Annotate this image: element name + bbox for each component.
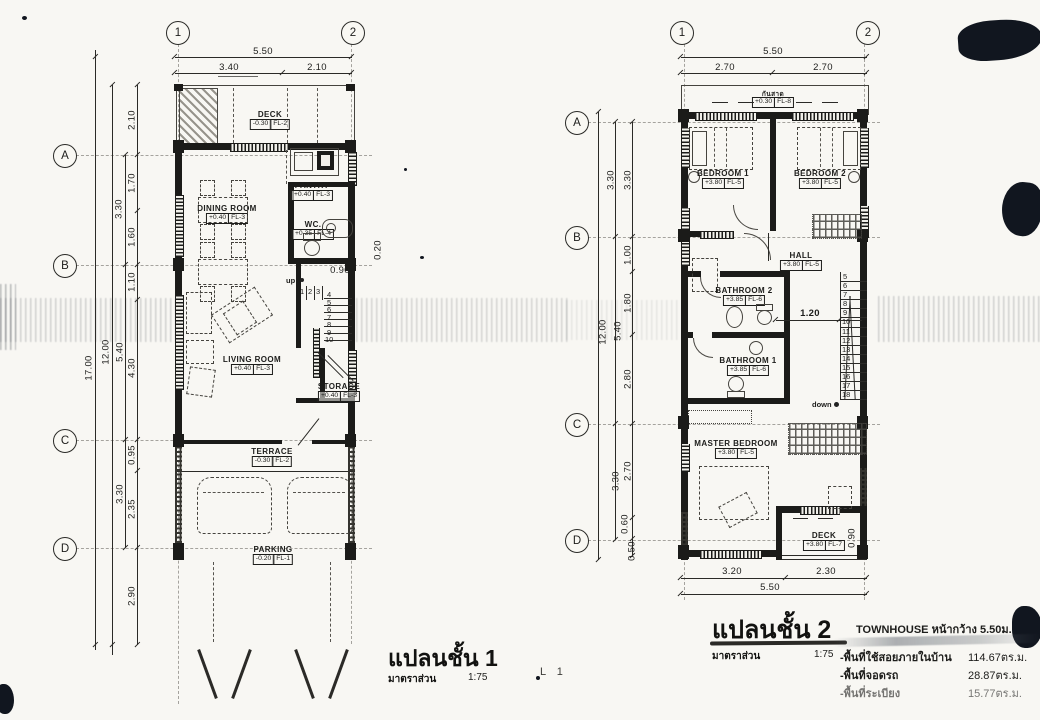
scan-speck [420, 256, 424, 259]
scan-speck [22, 16, 27, 20]
deck-joint [287, 88, 288, 143]
dining-table [198, 197, 248, 223]
grid-bubble-col2: 2 [856, 21, 880, 45]
floor-code: FL-3 [253, 364, 273, 375]
dim-text: 3.40 [219, 62, 239, 73]
dresser [812, 214, 862, 239]
toilet-tank [303, 233, 321, 241]
floor-code: FL-5 [802, 260, 822, 271]
wall [182, 440, 282, 444]
grid-bubble-rowB: B [53, 254, 77, 278]
dim-text: 17.00 [84, 342, 95, 394]
window-wall [681, 444, 690, 472]
floor-code: FL-5 [737, 448, 757, 459]
grid-label: B [573, 232, 581, 244]
level-value: +3.80 [780, 260, 803, 271]
grid-label: D [61, 543, 69, 555]
stair-direction: down [812, 401, 832, 409]
dim-line [175, 57, 352, 58]
bed-line [832, 128, 833, 167]
level-value: -0.30 [250, 119, 272, 130]
window-wall [230, 143, 288, 152]
column [173, 140, 184, 153]
dim-text: 2.70 [715, 62, 735, 73]
grid-bubble-col1: 1 [670, 21, 694, 45]
level-value: +3.80 [702, 178, 725, 189]
room-level-pantry: +0.40FL-3 [291, 190, 333, 201]
car-windshield [293, 492, 345, 493]
column [174, 84, 183, 91]
room-level-bathroom1: +3.85FL-6 [727, 365, 769, 376]
window-wall [348, 152, 357, 186]
column [173, 543, 184, 560]
grid-bubble-rowD: D [53, 537, 77, 561]
summary-row-value: 28.87ตร.ม. [968, 666, 1022, 684]
scan-blob [957, 17, 1040, 63]
grid-bubble-rowA: A [53, 144, 77, 168]
room-label-wc: WC. [305, 220, 322, 229]
level-value: +3.80 [799, 178, 822, 189]
room-label-hall: HALL [790, 251, 813, 260]
grid-bubble-rowA: A [565, 111, 589, 135]
dim-text: 1.70 [127, 157, 138, 209]
grid-bubble-rowB: B [565, 226, 589, 250]
deck-width-dim: 0.90 [847, 512, 858, 564]
floor-code: FL-6 [749, 365, 769, 376]
stair-number: 10 [325, 336, 333, 344]
dim-line [112, 85, 113, 655]
window-wall [700, 231, 734, 239]
stair-number: 3 [316, 288, 320, 296]
driveway-edge [330, 562, 331, 642]
driveway-edge [213, 562, 214, 642]
plan2-scale-label: มาตราส่วน [712, 649, 760, 664]
car-outline [197, 477, 272, 534]
driveway-mark [328, 649, 349, 699]
stair-number: 6 [843, 282, 847, 290]
dim-text: 0.50 [627, 525, 638, 577]
dim-text: 2.30 [816, 566, 836, 577]
room-level-hall: +3.80FL-5 [780, 260, 822, 271]
dim-text: 1.10 [127, 256, 138, 308]
grid-label: C [573, 419, 581, 431]
grid-label: A [61, 150, 69, 162]
stair-direction: up [286, 277, 295, 285]
sink-basin [294, 152, 313, 171]
deck-arrow [818, 518, 833, 519]
deck-joint [317, 88, 318, 143]
door-arc [693, 338, 713, 358]
wall [720, 271, 790, 277]
column [857, 109, 868, 122]
chair [200, 242, 215, 258]
stair-end-dot [834, 402, 839, 407]
scan-noise-band [356, 298, 568, 342]
canopy-arrow [738, 102, 754, 103]
scan-blob [999, 180, 1040, 238]
stair-number: 8 [843, 300, 847, 308]
floor-code: FL-8 [774, 97, 794, 108]
summary-row-value: 114.67ตร.ม. [968, 648, 1027, 666]
stair-width-dim: 0.90 [330, 265, 350, 276]
room-level-deck: -0.30FL-2 [250, 119, 290, 130]
wall [681, 398, 790, 404]
room-level-storage: +0.40FL-3 [318, 391, 360, 402]
car-windshield [203, 492, 264, 493]
floor-code: FL-5 [821, 178, 841, 189]
deck-joint [233, 88, 234, 143]
dim-line [681, 73, 867, 74]
grid-label: 2 [350, 27, 356, 39]
scan-blob [0, 684, 14, 714]
floor-code: FL-7 [825, 540, 845, 551]
column [345, 543, 356, 560]
pantry-partition [286, 150, 287, 184]
fence-wall [175, 443, 182, 543]
column [346, 84, 355, 91]
plan1-scale-value: 1:75 [468, 672, 487, 683]
level-value: +0.40 [231, 364, 254, 375]
dim-line [681, 594, 867, 595]
room-label-terrace: TERRACE [251, 447, 292, 456]
window-wall [175, 295, 184, 390]
dim-line [681, 578, 867, 579]
stair-number: 18 [842, 391, 850, 399]
room-level-canopy: +0.30FL-8 [752, 97, 794, 108]
wall [681, 332, 693, 338]
tv-stand [186, 340, 214, 364]
scan-speck [404, 168, 407, 171]
room-label-pantry: PANTRY [295, 181, 329, 190]
room-label-storage: STORAGE [318, 382, 360, 391]
car-outline [287, 477, 353, 534]
dim-tick [596, 557, 602, 563]
grid-label: 1 [679, 27, 685, 39]
dim-line [175, 73, 352, 74]
column [857, 545, 868, 559]
level-value: +0.40 [318, 391, 341, 402]
dim-text: 3.30 [114, 183, 125, 235]
toilet-tank [727, 391, 745, 398]
dim-text: 0.95 [127, 429, 138, 481]
dim-text: 3.30 [606, 154, 617, 206]
room-level-bedroom1: +3.80FL-5 [702, 178, 744, 189]
dim-text: 3.20 [722, 566, 742, 577]
stair-number: 2 [308, 288, 312, 296]
room-label-parking: PARKING [253, 545, 292, 554]
dim-text: 5.40 [115, 326, 126, 378]
column [173, 258, 184, 271]
room-level-bedroom2: +3.80FL-5 [799, 178, 841, 189]
dim-text: 1.20 [800, 308, 820, 319]
driveway-mark [294, 649, 315, 699]
wall-fan-symbol [848, 171, 860, 183]
wall [296, 264, 301, 348]
level-value: +3.85 [723, 295, 746, 306]
wall [312, 440, 348, 444]
dim-text: 2.70 [813, 62, 833, 73]
chair [828, 486, 852, 509]
window-wall [860, 128, 869, 168]
room-level-living: +0.40FL-3 [231, 364, 273, 375]
level-value: +0.40 [291, 190, 314, 201]
floor-code: FL-2 [270, 119, 290, 130]
summary-row-label: -พื้นที่ระเบียง [840, 684, 900, 702]
side-table [186, 366, 216, 397]
stair-start-dot [300, 278, 304, 282]
wall-speckle [860, 468, 867, 508]
dim-text: 4.30 [127, 342, 138, 394]
dim-line [218, 76, 258, 77]
driveway-mark [231, 649, 252, 699]
stove-top [321, 155, 330, 166]
chair [231, 224, 246, 240]
dim-text: 2.70 [623, 445, 634, 497]
canopy-arrow [712, 102, 728, 103]
dim-text: 2.10 [127, 94, 138, 146]
level-value: +3.80 [715, 448, 738, 459]
floor-code: FL-2 [272, 456, 292, 467]
column [678, 545, 689, 559]
stair-number: 1 [300, 288, 304, 296]
chair [200, 224, 215, 240]
dim-text: 2.80 [623, 353, 634, 405]
dim-text: 1.80 [623, 277, 634, 329]
dim-text: 2.90 [127, 570, 138, 622]
stair-tread [322, 286, 323, 300]
toilet [757, 310, 772, 325]
wall [784, 271, 790, 404]
room-label-deck: DECK [258, 110, 282, 119]
dining-table [198, 259, 248, 285]
cabinet [186, 292, 212, 334]
plan2-scale-value: 1:75 [814, 649, 833, 660]
toilet [728, 376, 744, 392]
dim-text: 12.00 [101, 326, 112, 378]
wall [712, 332, 790, 338]
dim-text: 3.30 [115, 468, 126, 520]
dim-text: 1.00 [623, 229, 634, 281]
level-value: +0.30 [752, 97, 775, 108]
column [173, 434, 184, 447]
floor-code: FL-1 [273, 554, 293, 565]
chair [231, 180, 246, 196]
chair [231, 242, 246, 258]
grid-bubble-rowD: D [565, 529, 589, 553]
grid-label: A [573, 117, 581, 129]
stair-tread [306, 286, 307, 300]
grid-label: 2 [865, 27, 871, 39]
toilet-tank [756, 304, 773, 311]
sheet-note: L 1 [540, 666, 567, 678]
terrace-edge [175, 471, 355, 472]
wall [770, 119, 776, 231]
bed-line [726, 128, 727, 167]
room-level-parking: -0.20FL-1 [253, 554, 293, 565]
level-value: -0.20 [253, 554, 275, 565]
window-wall [175, 195, 184, 257]
dim-text: 5.50 [760, 582, 780, 593]
grid-bubble-rowC: C [53, 429, 77, 453]
door-leaf [768, 233, 769, 261]
plan1-scale-label: มาตราส่วน [388, 672, 436, 687]
desk [692, 258, 718, 292]
balcony-rail [688, 410, 752, 424]
window-wall [695, 112, 757, 121]
room-label-bedroom1: BEDROOM 1 [697, 169, 749, 178]
grid-label: B [61, 260, 69, 272]
room-label-bathroom1: BATHROOM 1 [719, 356, 776, 365]
room-label-bedroom2: BEDROOM 2 [794, 169, 846, 178]
wall [175, 143, 182, 445]
level-value: +3.85 [727, 365, 750, 376]
sink [726, 306, 743, 328]
planter [179, 88, 218, 145]
room-label-bathroom2: BATHROOM 2 [715, 286, 772, 295]
column [678, 416, 689, 429]
room-label-deck2: DECK [812, 531, 836, 540]
dim-text: 3.30 [623, 154, 634, 206]
room-level-master: +3.80FL-5 [715, 448, 757, 459]
stair-number: 7 [843, 291, 847, 299]
dim-text: 5.50 [763, 46, 783, 57]
room-level-terrace: -0.30FL-2 [252, 456, 292, 467]
stair-number: 12 [842, 337, 850, 345]
grid-label: D [573, 535, 581, 547]
window-wall [792, 112, 854, 121]
bed-line [714, 128, 715, 167]
dim-text: 5.50 [253, 46, 273, 57]
room-label-master: MASTER BEDROOM [694, 439, 777, 448]
grid-label: C [61, 435, 69, 447]
grid-label: 1 [175, 27, 181, 39]
scan-noise-band [0, 298, 178, 342]
sink [749, 341, 763, 355]
column [345, 434, 356, 447]
dim-text: 12.00 [598, 306, 609, 358]
door-arc [733, 205, 758, 230]
deck-arrow [793, 518, 808, 519]
room-level-deck2: +3.80FL-7 [803, 540, 845, 551]
stair-tread [314, 286, 315, 300]
dim-tick [135, 642, 141, 648]
summary-row-label: -พื้นที่จอดรถ [840, 666, 898, 684]
wardrobe [788, 423, 867, 455]
toilet [304, 240, 320, 256]
grid-bubble-col1: 1 [166, 21, 190, 45]
window-wall [700, 550, 762, 559]
dim-line [681, 57, 867, 58]
stair-number: 5 [843, 273, 847, 281]
pillow [692, 131, 707, 166]
floor-code: FL-3 [313, 190, 333, 201]
column [678, 109, 689, 122]
floor-code: FL-3 [340, 391, 360, 402]
summary-row-value: 15.77ตร.ม. [968, 684, 1022, 702]
grid-line [76, 548, 372, 549]
bathtub-drain [326, 223, 336, 233]
canopy-arrow [796, 102, 812, 103]
scan-noise-band [878, 296, 1040, 342]
canopy-arrow [822, 102, 838, 103]
dim-text: 2.10 [307, 62, 327, 73]
level-value: -0.30 [252, 456, 274, 467]
room-label-living: LIVING ROOM [223, 355, 281, 364]
summary-row-label: -พื้นที่ใช้สอยภายในบ้าน [840, 648, 952, 666]
floor-plan-sheet: 1 2 A B C D 5.50 3.40 2.10 [0, 0, 1040, 720]
column [678, 229, 689, 242]
grid-bubble-col2: 2 [341, 21, 365, 45]
grid-bubble-rowC: C [565, 413, 589, 437]
floor-code: FL-5 [724, 178, 744, 189]
chair [200, 180, 215, 196]
column [345, 140, 356, 153]
level-value: +3.80 [803, 540, 826, 551]
dim-text: 2.35 [127, 483, 138, 535]
driveway-mark [197, 649, 218, 699]
stair-number: 9 [843, 309, 847, 317]
bed-line [820, 128, 821, 167]
dim-line [95, 50, 96, 650]
pillow [843, 131, 858, 166]
door-dim: 0.20 [373, 224, 384, 276]
